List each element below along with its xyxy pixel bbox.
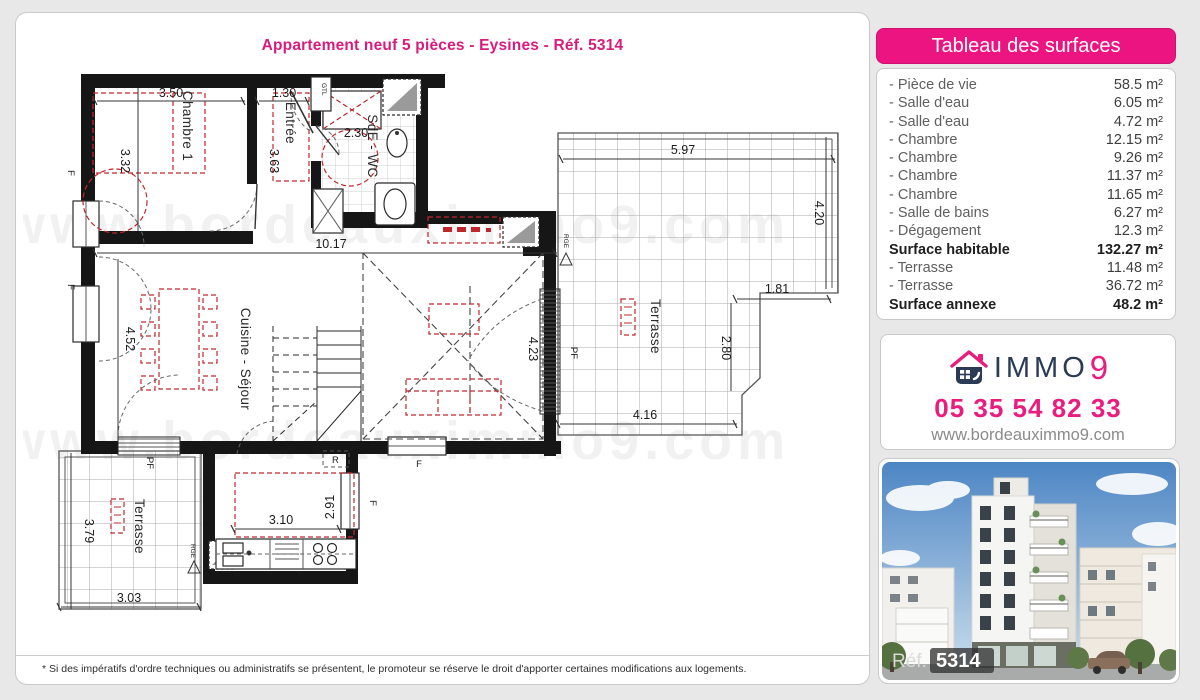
svg-text:1.81: 1.81 xyxy=(765,282,789,296)
pf-glazed-door-terrace xyxy=(118,437,180,455)
gtl-box: GTL xyxy=(311,77,331,111)
house-icon xyxy=(948,349,990,387)
surface-row-label: - Chambre xyxy=(889,186,958,204)
svg-text:1.30: 1.30 xyxy=(272,86,296,100)
surface-table: - Pièce de vie58.5 m²- Salle d'eau6.05 m… xyxy=(876,68,1176,320)
room-label-sejour: Cuisine - Séjour xyxy=(238,308,253,411)
surface-row-value: 12.3 m² xyxy=(1114,222,1163,240)
svg-text:5.97: 5.97 xyxy=(671,143,695,157)
sink xyxy=(223,543,243,553)
surface-row-value: 11.48 m² xyxy=(1107,259,1163,277)
kitchen-counter xyxy=(216,539,356,569)
dining-table xyxy=(159,289,199,389)
surface-row-label: - Salle d'eau xyxy=(889,94,969,112)
agency-logo: IMMO 9 xyxy=(881,349,1175,387)
surface-row-label: - Salle d'eau xyxy=(889,113,969,131)
svg-text:2.91: 2.91 xyxy=(323,495,337,519)
room-label-entree: Entrée xyxy=(283,102,298,144)
page: { "page": { "title": "Appartement neuf 5… xyxy=(0,0,1200,700)
surface-row: - Salle d'eau4.72 m² xyxy=(889,113,1163,131)
surface-row: Surface annexe48.2 m² xyxy=(889,296,1163,314)
gtl-label: GTL xyxy=(320,83,327,96)
surface-row-label: - Chambre xyxy=(889,167,958,185)
duct xyxy=(503,217,539,247)
rge-label: RGE xyxy=(189,544,196,559)
window-label-f: F xyxy=(65,284,76,290)
surface-row-value: 6.27 m² xyxy=(1114,204,1163,222)
door-swings xyxy=(99,91,542,454)
surface-row: - Chambre11.37 m² xyxy=(889,167,1163,185)
window-label-f: F xyxy=(65,170,76,176)
page-title: Appartement neuf 5 pièces - Eysines - Ré… xyxy=(16,37,869,55)
svg-text:3.03: 3.03 xyxy=(117,591,141,605)
surface-row: - Terrasse36.72 m² xyxy=(889,277,1163,295)
surface-row-label: - Salle de bains xyxy=(889,204,989,222)
surface-row-value: 36.72 m² xyxy=(1106,277,1163,295)
terrace-top-label: Terrasse xyxy=(648,299,663,354)
terrace-bottom-label: Terrasse xyxy=(132,499,147,554)
surface-row-value: 48.2 m² xyxy=(1113,296,1163,314)
agency-phone: 05 35 54 82 33 xyxy=(881,393,1175,424)
surface-row-value: 4.72 m² xyxy=(1114,113,1163,131)
svg-text:2.30: 2.30 xyxy=(344,126,368,140)
surface-row-label: - Terrasse xyxy=(889,277,953,295)
window-label-f: F xyxy=(416,459,422,470)
window-kitchen xyxy=(341,473,359,529)
surface-row-value: 11.37 m² xyxy=(1107,167,1163,185)
surface-row: - Terrasse11.48 m² xyxy=(889,259,1163,277)
ref-label: Réf. xyxy=(892,651,927,672)
surface-table-header: Tableau des surfaces xyxy=(876,28,1176,64)
surface-row-label: - Dégagement xyxy=(889,222,981,240)
window-sejour-left xyxy=(73,286,99,342)
window-label-pf: PF xyxy=(144,457,155,469)
surface-row: - Chambre11.65 m² xyxy=(889,186,1163,204)
ref-number: 5314 xyxy=(936,650,981,672)
coffee-table xyxy=(429,304,479,334)
floor-plan-card: Appartement neuf 5 pièces - Eysines - Ré… xyxy=(15,12,870,685)
room-label-sde: SdE - WC xyxy=(365,114,380,177)
surface-row-value: 132.27 m² xyxy=(1097,241,1163,259)
surface-row: Surface habitable132.27 m² xyxy=(889,241,1163,259)
surface-row: - Salle d'eau6.05 m² xyxy=(889,94,1163,112)
svg-text:2.80: 2.80 xyxy=(719,336,733,360)
fridge-label: R xyxy=(332,455,339,466)
terrace-top: Terrasse xyxy=(558,133,838,435)
svg-text:3.63: 3.63 xyxy=(267,149,281,173)
footer-divider xyxy=(16,655,869,656)
svg-text:4.52: 4.52 xyxy=(123,327,137,351)
agency-card: IMMO 9 05 35 54 82 33 www.bordeauximmo9.… xyxy=(880,334,1176,450)
brand-immo: IMMO xyxy=(994,352,1089,385)
surface-row-value: 6.05 m² xyxy=(1114,94,1163,112)
surface-row-value: 9.26 m² xyxy=(1114,149,1163,167)
window-label-f: F xyxy=(367,500,378,506)
surface-row-label: Surface habitable xyxy=(889,241,1010,259)
surface-row: - Salle de bains6.27 m² xyxy=(889,204,1163,222)
surface-row-value: 11.65 m² xyxy=(1107,186,1163,204)
svg-text:3.50: 3.50 xyxy=(159,86,183,100)
svg-text:4.20: 4.20 xyxy=(812,201,826,225)
surface-row: - Chambre9.26 m² xyxy=(889,149,1163,167)
surface-row: - Chambre12.15 m² xyxy=(889,131,1163,149)
svg-text:4.16: 4.16 xyxy=(633,408,657,422)
svg-text:10.17: 10.17 xyxy=(315,237,346,251)
hob-burner xyxy=(314,544,323,553)
brand-nine: 9 xyxy=(1090,349,1108,387)
surface-table-title: Tableau des surfaces xyxy=(931,35,1120,58)
building-photo: Réf. 5314 xyxy=(882,462,1176,680)
terrace-bottom: Terrasse xyxy=(59,451,201,609)
reference-overlay: Réf. 5314 xyxy=(892,648,994,673)
surface-row: - Pièce de vie58.5 m² xyxy=(889,76,1163,94)
agency-website: www.bordeauximmo9.com xyxy=(881,426,1175,445)
svg-text:3.32: 3.32 xyxy=(118,149,132,173)
window-sejour-bottom xyxy=(388,437,446,455)
surface-row-value: 12.15 m² xyxy=(1106,131,1163,149)
duct xyxy=(383,79,421,115)
surface-row-value: 58.5 m² xyxy=(1114,76,1163,94)
window-chambre xyxy=(73,201,99,247)
room-label-chambre1: Chambre 1 xyxy=(180,91,195,161)
svg-text:3.10: 3.10 xyxy=(269,513,293,527)
surface-row-label: - Chambre xyxy=(889,149,958,167)
surface-row: - Dégagement12.3 m² xyxy=(889,222,1163,240)
rge-label: RGE xyxy=(562,234,569,249)
floor-plan-drawing: www.bordeauximmo9.com www.bordeauximmo9.… xyxy=(23,61,868,636)
surface-row-label: - Pièce de vie xyxy=(889,76,977,94)
svg-text:3.79: 3.79 xyxy=(82,519,96,543)
svg-text:4.23: 4.23 xyxy=(526,337,540,361)
window-label-pf: PF xyxy=(568,347,579,359)
disclaimer-text: * Si des impératifs d'ordre techniques o… xyxy=(42,663,746,675)
surface-row-label: Surface annexe xyxy=(889,296,996,314)
surface-row-label: - Chambre xyxy=(889,131,958,149)
surface-row-label: - Terrasse xyxy=(889,259,953,277)
sofa xyxy=(406,379,501,415)
building-photo-card: Réf. 5314 xyxy=(878,458,1180,684)
